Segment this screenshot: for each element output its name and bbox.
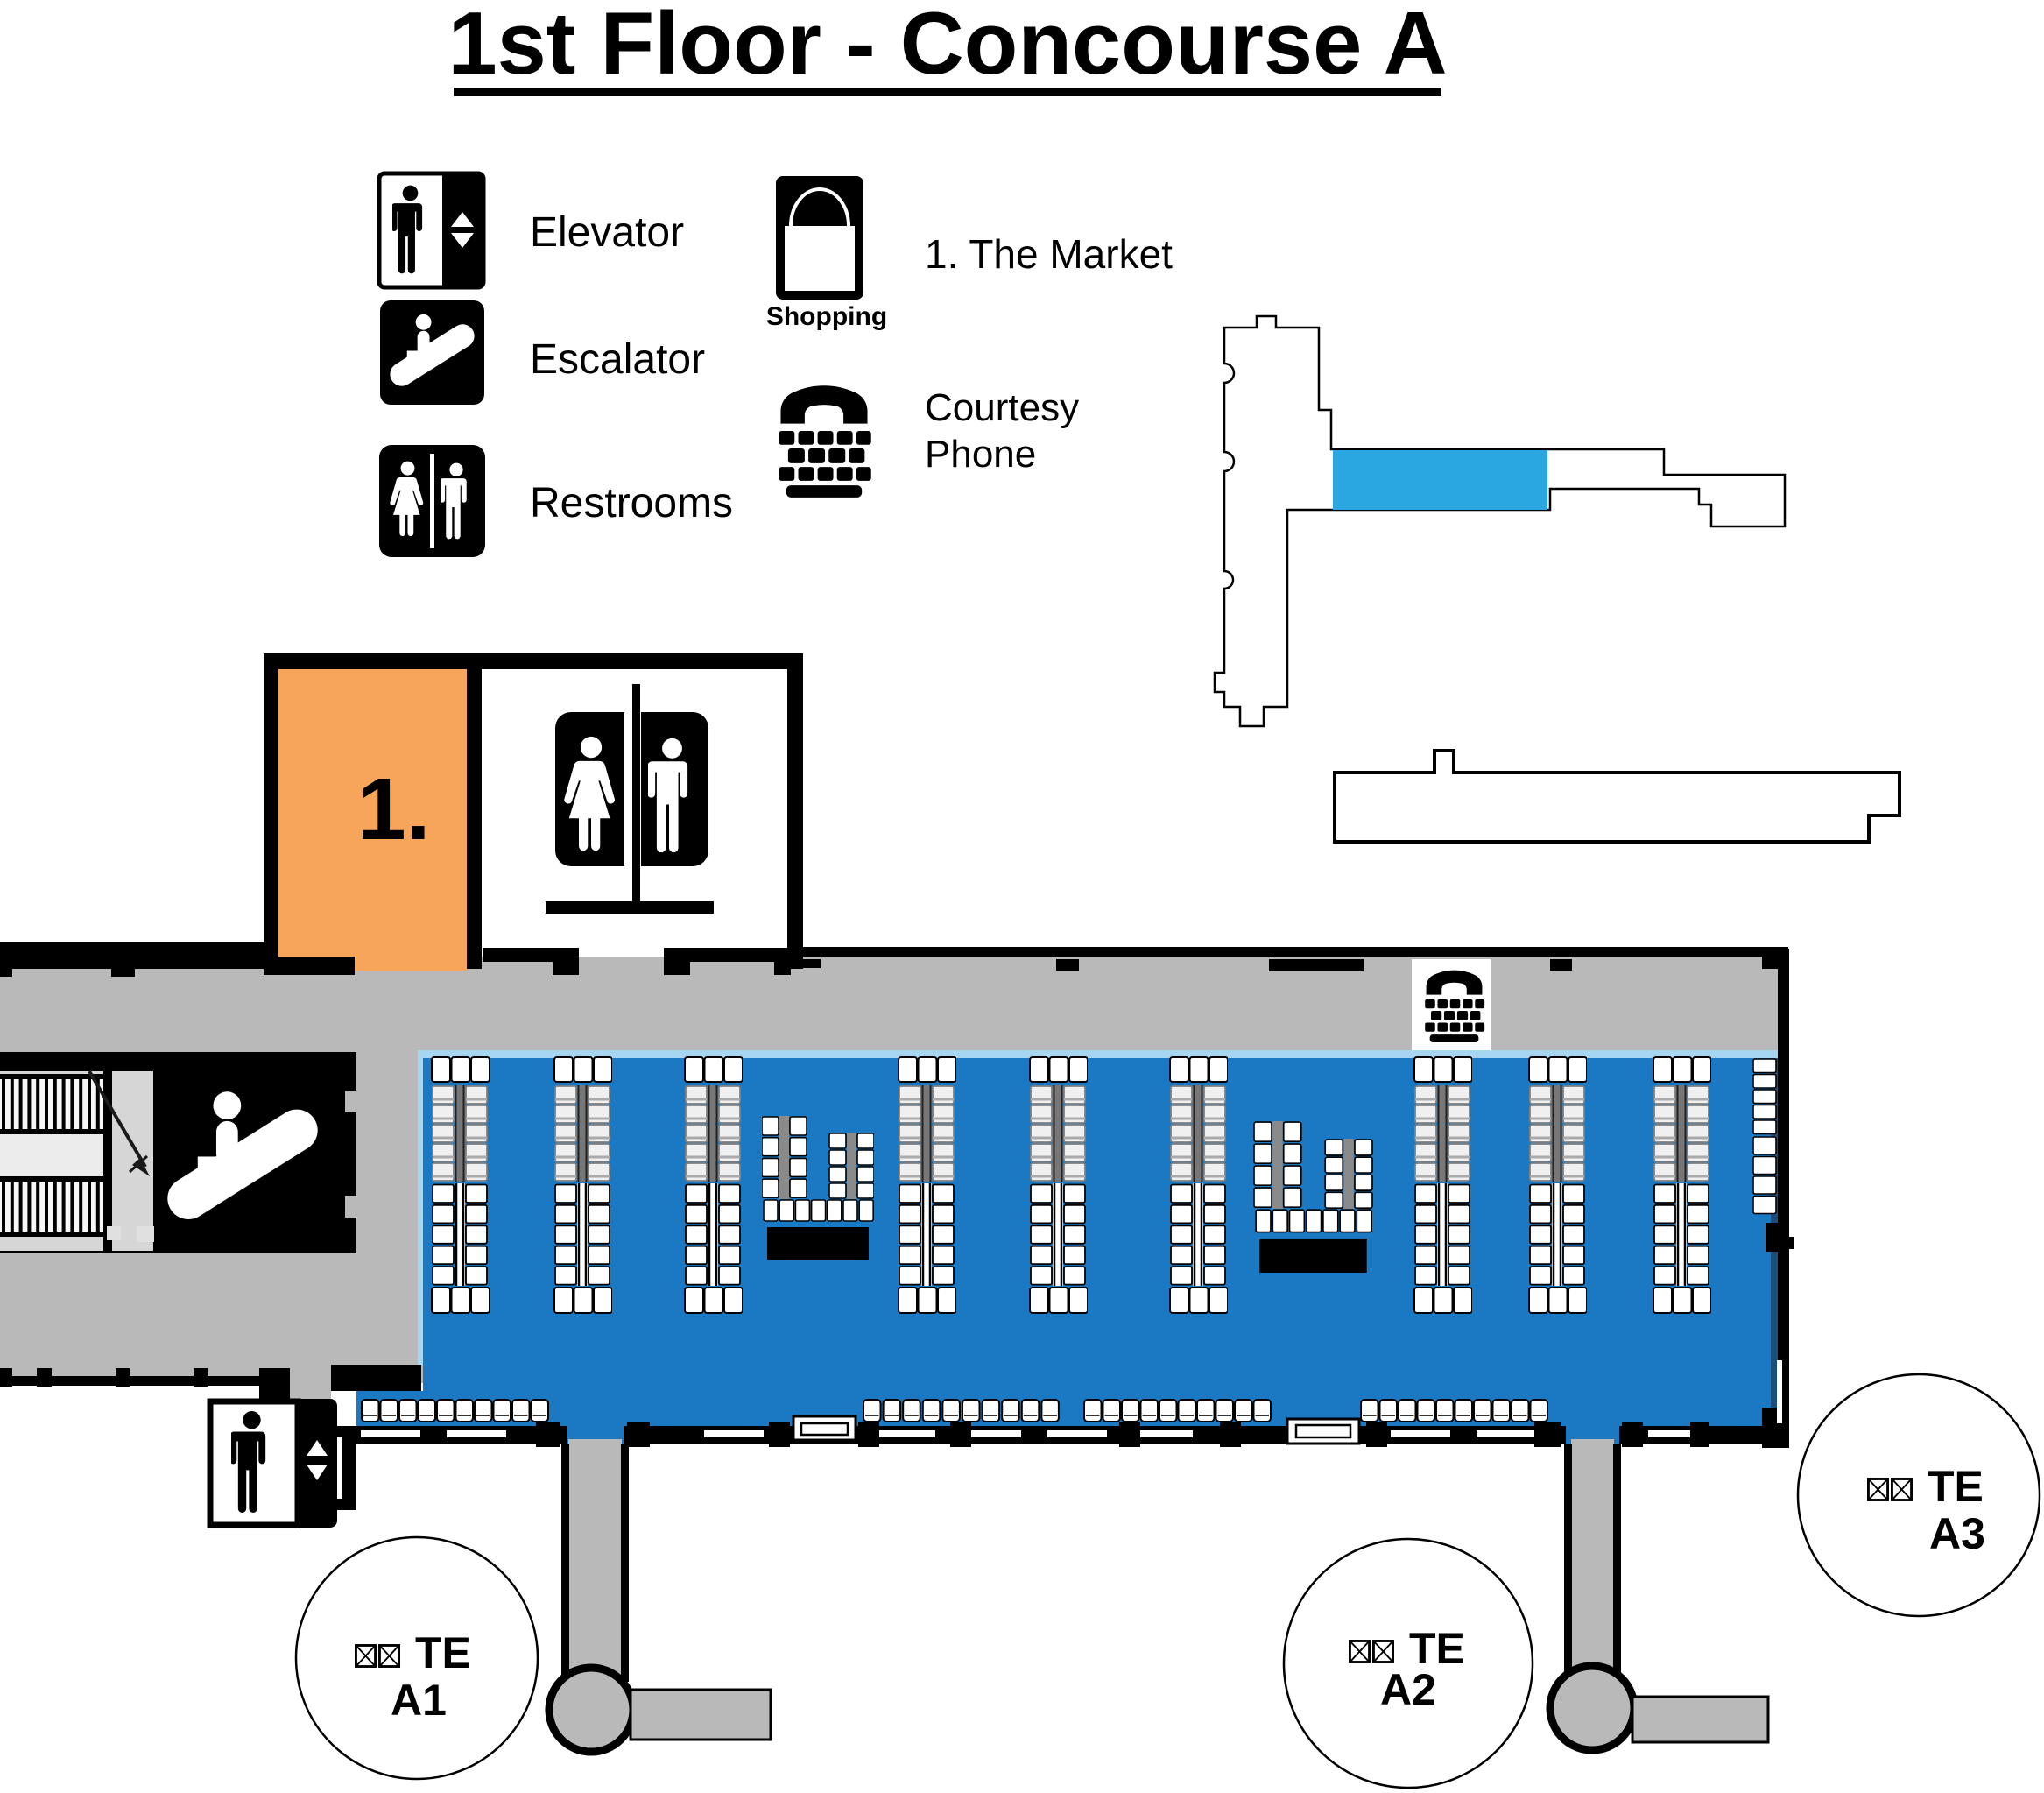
svg-text:Shopping: Shopping bbox=[766, 302, 887, 331]
svg-text:A3: A3 bbox=[1929, 1509, 1985, 1558]
svg-text:Elevator: Elevator bbox=[530, 209, 684, 256]
svg-text:Courtesy: Courtesy bbox=[925, 386, 1079, 429]
svg-text:1. The Market: 1. The Market bbox=[925, 231, 1173, 277]
svg-text:1.: 1. bbox=[357, 760, 430, 858]
svg-text:TE: TE bbox=[415, 1628, 471, 1677]
svg-text:Phone: Phone bbox=[925, 433, 1036, 476]
svg-text:1st Floor - Concourse A: 1st Floor - Concourse A bbox=[448, 0, 1447, 93]
svg-text:TE: TE bbox=[1928, 1462, 1984, 1511]
svg-text:Escalator: Escalator bbox=[530, 336, 705, 383]
svg-text:A1: A1 bbox=[391, 1676, 447, 1725]
svg-text:A2: A2 bbox=[1380, 1665, 1436, 1714]
svg-text:Restrooms: Restrooms bbox=[530, 480, 733, 526]
